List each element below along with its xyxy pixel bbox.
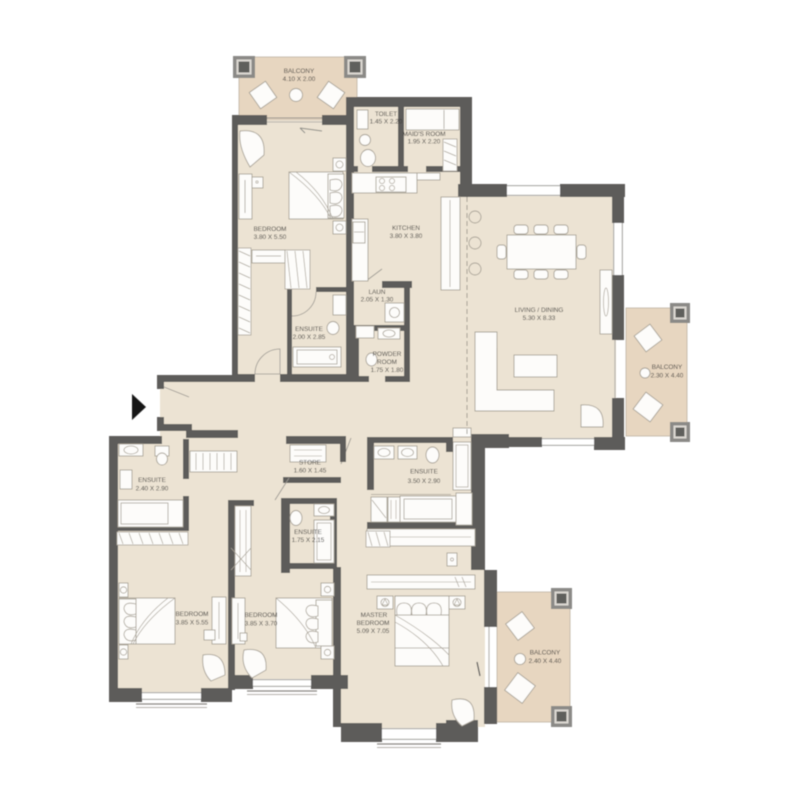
svg-text:1.45 X 2.20: 1.45 X 2.20	[370, 119, 403, 126]
svg-text:KITCHEN: KITCHEN	[392, 225, 420, 232]
svg-text:3.50 X 2.90: 3.50 X 2.90	[408, 478, 441, 485]
svg-text:BALCONY: BALCONY	[652, 364, 683, 371]
svg-text:ROOM: ROOM	[377, 359, 397, 366]
svg-text:TOILET: TOILET	[375, 111, 397, 118]
svg-text:MASTER: MASTER	[361, 612, 388, 619]
svg-text:BALCONY: BALCONY	[284, 68, 315, 75]
svg-text:2.40 X 2.90: 2.40 X 2.90	[136, 486, 169, 493]
svg-text:BEDROOM: BEDROOM	[175, 611, 208, 618]
svg-text:3.85 X 3.70: 3.85 X 3.70	[245, 621, 278, 628]
svg-text:ENSUITE: ENSUITE	[295, 326, 323, 333]
svg-text:1.75 X 2.15: 1.75 X 2.15	[292, 537, 325, 544]
svg-text:1.95 X 2.20: 1.95 X 2.20	[408, 139, 441, 146]
svg-text:BALCONY: BALCONY	[530, 650, 561, 657]
svg-text:STORE: STORE	[299, 460, 321, 467]
svg-text:4.10 X 2.00: 4.10 X 2.00	[283, 76, 316, 83]
svg-text:1.60 X 1.45: 1.60 X 1.45	[294, 468, 327, 475]
svg-text:MAID'S ROOM: MAID'S ROOM	[402, 131, 445, 138]
svg-text:2.30 X 4.40: 2.30 X 4.40	[651, 373, 684, 380]
svg-text:ENSUITE: ENSUITE	[294, 529, 322, 536]
svg-text:LIVING / DINING: LIVING / DINING	[515, 307, 564, 314]
svg-text:3.85 X 5.55: 3.85 X 5.55	[176, 620, 209, 627]
svg-text:3.80 X 5.50: 3.80 X 5.50	[254, 234, 287, 241]
svg-text:3.80 X 3.80: 3.80 X 3.80	[390, 233, 423, 240]
svg-text:BEDROOM: BEDROOM	[253, 226, 286, 233]
svg-text:2.05 X 1.30: 2.05 X 1.30	[361, 297, 394, 304]
svg-text:2.40 X 4.40: 2.40 X 4.40	[529, 658, 562, 665]
svg-text:1.75 X 1.80: 1.75 X 1.80	[371, 367, 404, 374]
svg-text:BEDROOM: BEDROOM	[244, 612, 277, 619]
svg-text:ENSUITE: ENSUITE	[138, 477, 166, 484]
svg-text:LAUN: LAUN	[368, 289, 385, 296]
svg-text:BEDROOM: BEDROOM	[356, 620, 389, 627]
svg-text:2.00 X 2.85: 2.00 X 2.85	[293, 334, 326, 341]
svg-text:5.09 X 7.05: 5.09 X 7.05	[357, 628, 390, 635]
svg-text:ENSUITE: ENSUITE	[410, 469, 438, 476]
svg-text:POWDER: POWDER	[373, 351, 402, 358]
svg-text:5.30 X 8.33: 5.30 X 8.33	[523, 315, 556, 322]
